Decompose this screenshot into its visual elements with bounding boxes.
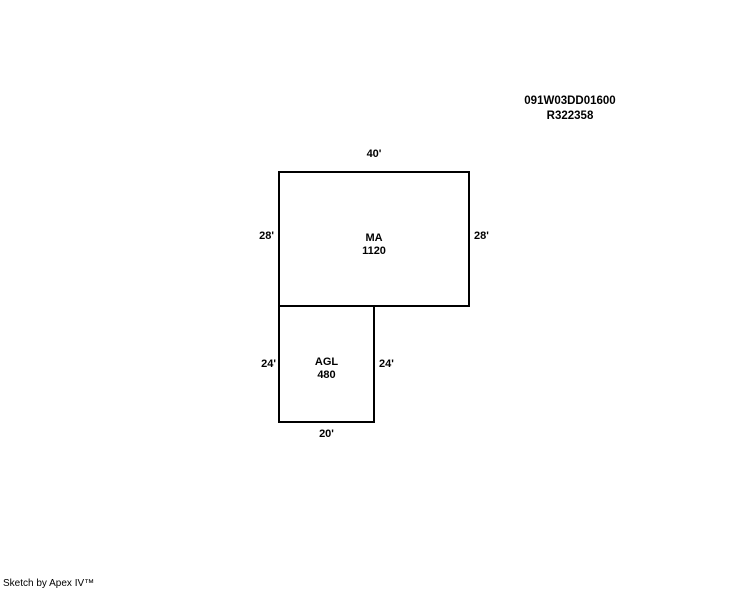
parcel-id: 091W03DD01600 [470,94,670,109]
agl-bottom-dimension: 20' [278,428,375,441]
agl-area: 480 [278,369,375,382]
ma-left-dimension: 28' [230,230,274,243]
ma-right-dimension: 28' [474,230,489,243]
sketch-credit: Sketch by Apex IV™ [3,577,94,590]
account-number: R322358 [470,109,670,124]
agl-right-dimension: 24' [379,358,394,371]
ma-top-dimension: 40' [278,148,470,161]
sketch-page: 091W03DD01600 R322358 40' 28' 28' MA 112… [0,0,744,595]
ma-label: MA 1120 [278,232,470,258]
ma-code: MA [278,232,470,245]
agl-label: AGL 480 [278,356,375,382]
agl-code: AGL [278,356,375,369]
parcel-id-block: 091W03DD01600 R322358 [470,94,670,124]
ma-area: 1120 [278,245,470,258]
agl-left-dimension: 24' [232,358,276,371]
